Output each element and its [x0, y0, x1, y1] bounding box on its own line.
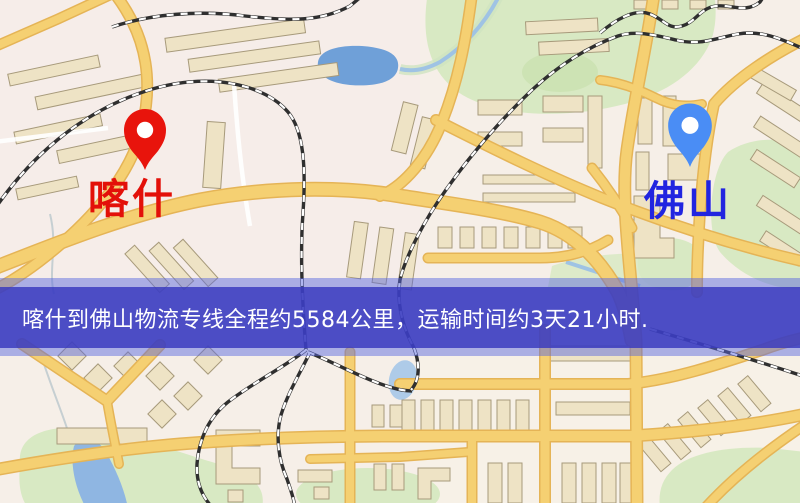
route-info-text: 喀什到佛山物流专线全程约5584公里，运输时间约3天21小时.: [0, 302, 648, 334]
origin-city-label: 喀什: [88, 178, 176, 220]
logistics-route-map: 喀什 佛山 喀什到佛山物流专线全程约5584公里，运输时间约3天21小时.: [0, 0, 800, 503]
origin-pin-hole: [137, 122, 153, 138]
route-info-banner: 喀什到佛山物流专线全程约5584公里，运输时间约3天21小时.: [0, 287, 800, 348]
destination-city-label: 佛山: [644, 180, 732, 222]
destination-pin-hole: [681, 117, 698, 134]
map-canvas: [0, 0, 800, 503]
